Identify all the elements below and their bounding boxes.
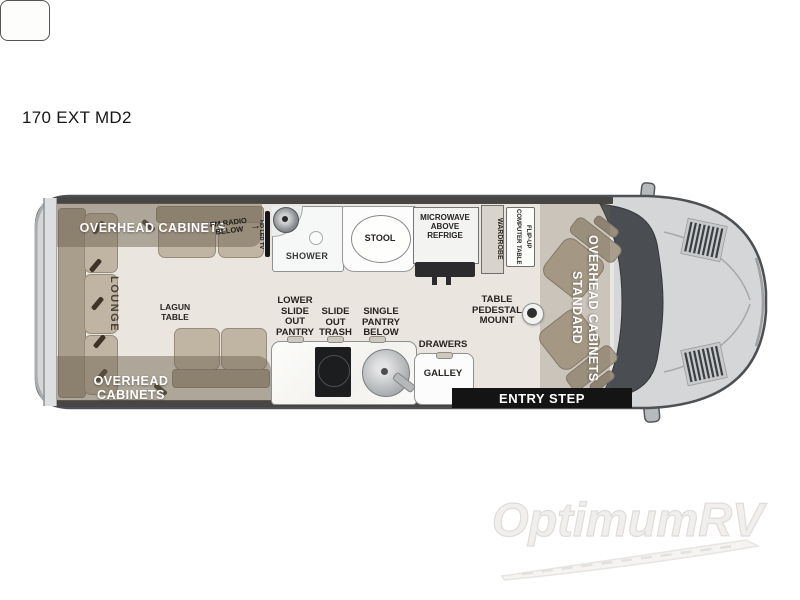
galley-label: GALLEY — [414, 369, 472, 380]
watermark-road-icon — [498, 532, 788, 582]
table-pedestal-mount-label: TABLE PEDESTAL MOUNT — [464, 295, 530, 327]
flip-up-computer-table-label: FLIP-UP COMPUTER TABLE — [507, 208, 533, 266]
shower-label: SHOWER — [272, 251, 342, 261]
overhead-cabinets-standard-label: OVERHEAD CABINETS STANDARD — [565, 222, 601, 394]
table-pedestal-mount-socket — [527, 308, 537, 318]
shower-faucet-icon — [282, 216, 288, 222]
lagun-table-label: LAGUN TABLE — [151, 303, 199, 322]
sink-drain — [381, 368, 388, 375]
overhead-cabinets-bottom-label: OVERHEAD CABINETS — [58, 374, 204, 402]
hood-vent-top — [681, 218, 728, 262]
hd-led-tv-label: HD LED TV — [255, 214, 264, 256]
hood-vent-bottom — [681, 342, 728, 386]
lower-slide-out-pantry-label: LOWER SLIDE OUT PANTRY — [272, 296, 318, 339]
refrigerator-leg — [446, 277, 451, 285]
drawers-label: DRAWERS — [410, 340, 476, 351]
lounge-label: LOUNGE — [102, 266, 120, 342]
entry-step-label: ENTRY STEP — [452, 391, 632, 406]
drawer-pull-icon — [436, 352, 453, 359]
microwave-label: MICROWAVE ABOVE REFRIGE — [413, 214, 477, 241]
cooktop-burner — [318, 355, 350, 387]
rv-floorplan-page: 170 EXT MD2 — [0, 0, 800, 600]
shower-drain — [309, 231, 323, 245]
hd-led-tv — [265, 211, 270, 257]
watermark: OptimumRV — [492, 492, 792, 592]
single-pantry-below-label: SINGLE PANTRY BELOW — [355, 307, 407, 339]
refrigerator-leg — [432, 277, 437, 285]
refrigerator-front — [415, 262, 475, 277]
stool-label: STOOL — [351, 233, 409, 243]
rear-door-band — [44, 198, 57, 406]
wardrobe-label: WARDROBE — [481, 208, 503, 270]
slide-out-trash-label: SLIDE OUT TRASH — [313, 307, 358, 339]
